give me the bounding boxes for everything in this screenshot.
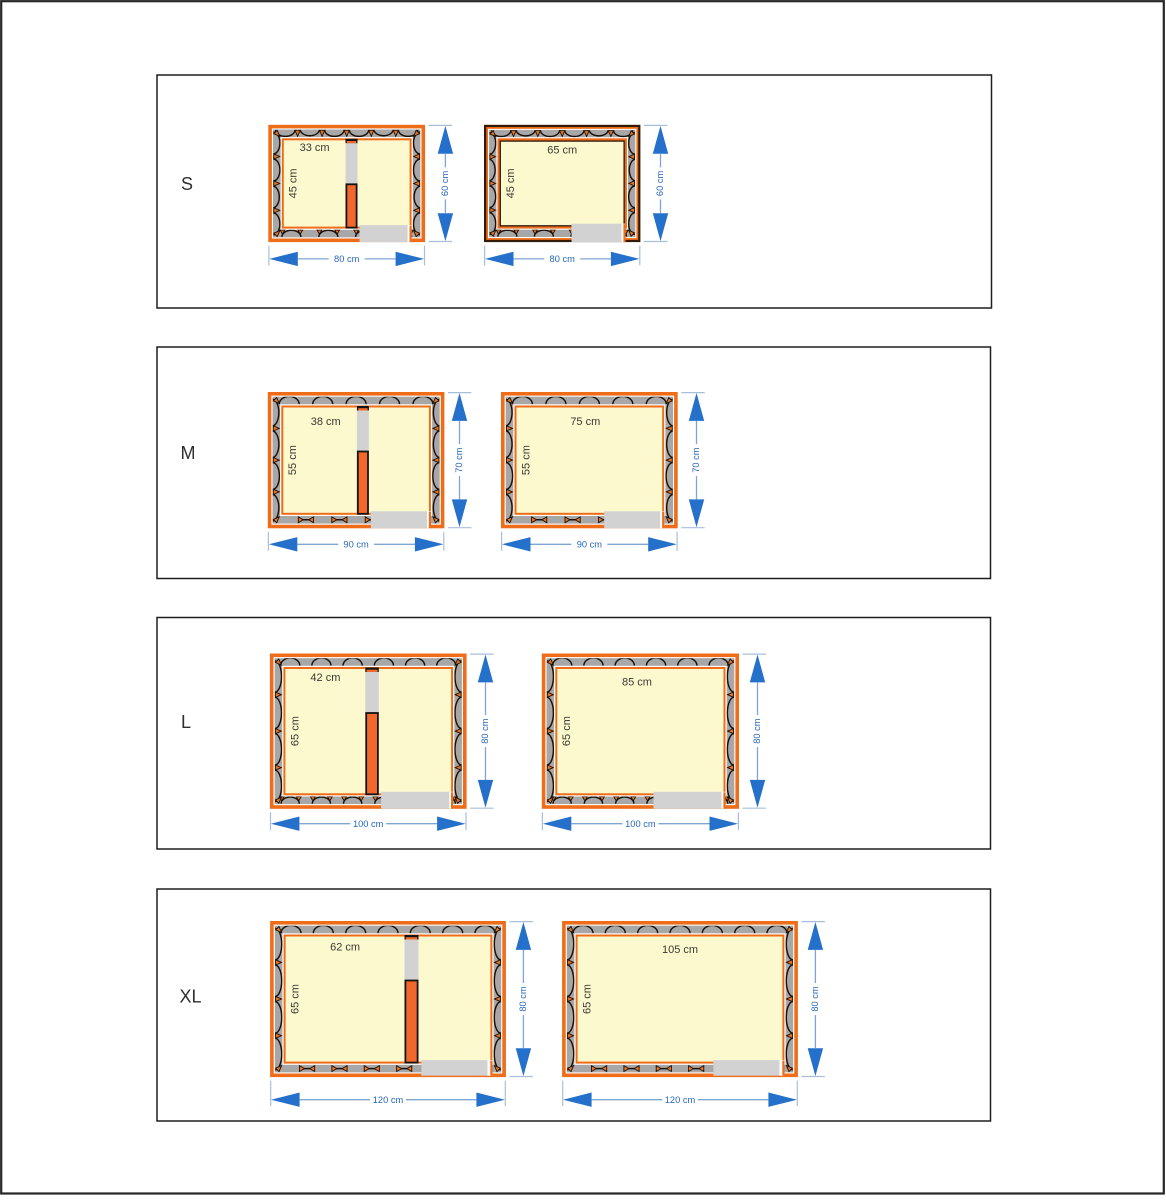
svg-text:90 cm: 90 cm (577, 540, 603, 550)
svg-text:80 cm: 80 cm (480, 718, 490, 744)
svg-text:80 cm: 80 cm (334, 254, 360, 264)
svg-text:75 cm: 75 cm (570, 416, 600, 428)
svg-text:105 cm: 105 cm (662, 944, 698, 956)
svg-text:100 cm: 100 cm (625, 819, 656, 829)
svg-text:XL: XL (179, 986, 201, 1006)
svg-text:80 cm: 80 cm (518, 986, 528, 1012)
svg-text:65 cm: 65 cm (547, 144, 577, 156)
svg-text:80 cm: 80 cm (810, 986, 820, 1012)
svg-text:70 cm: 70 cm (691, 447, 701, 473)
svg-text:120 cm: 120 cm (373, 1095, 404, 1105)
svg-text:62 cm: 62 cm (330, 942, 360, 954)
svg-text:42 cm: 42 cm (310, 672, 340, 684)
svg-text:85 cm: 85 cm (622, 677, 652, 689)
svg-text:60 cm: 60 cm (440, 170, 450, 196)
svg-text:80 cm: 80 cm (550, 254, 576, 264)
svg-text:65 cm: 65 cm (290, 984, 302, 1014)
svg-text:L: L (181, 712, 191, 732)
svg-text:80 cm: 80 cm (752, 718, 762, 744)
svg-text:S: S (181, 174, 193, 194)
svg-text:65 cm: 65 cm (582, 984, 594, 1014)
svg-text:90 cm: 90 cm (343, 540, 369, 550)
svg-text:70 cm: 70 cm (454, 447, 464, 473)
svg-text:55 cm: 55 cm (287, 445, 299, 475)
svg-text:33 cm: 33 cm (300, 142, 330, 154)
svg-text:45 cm: 45 cm (505, 168, 517, 198)
svg-text:60 cm: 60 cm (655, 170, 665, 196)
svg-text:100 cm: 100 cm (353, 819, 384, 829)
svg-text:38 cm: 38 cm (311, 416, 341, 428)
svg-text:45 cm: 45 cm (288, 168, 300, 198)
svg-text:M: M (181, 443, 196, 463)
svg-text:120 cm: 120 cm (665, 1095, 696, 1105)
svg-text:65 cm: 65 cm (561, 716, 573, 746)
svg-text:55 cm: 55 cm (520, 445, 532, 475)
svg-text:65 cm: 65 cm (289, 716, 301, 746)
